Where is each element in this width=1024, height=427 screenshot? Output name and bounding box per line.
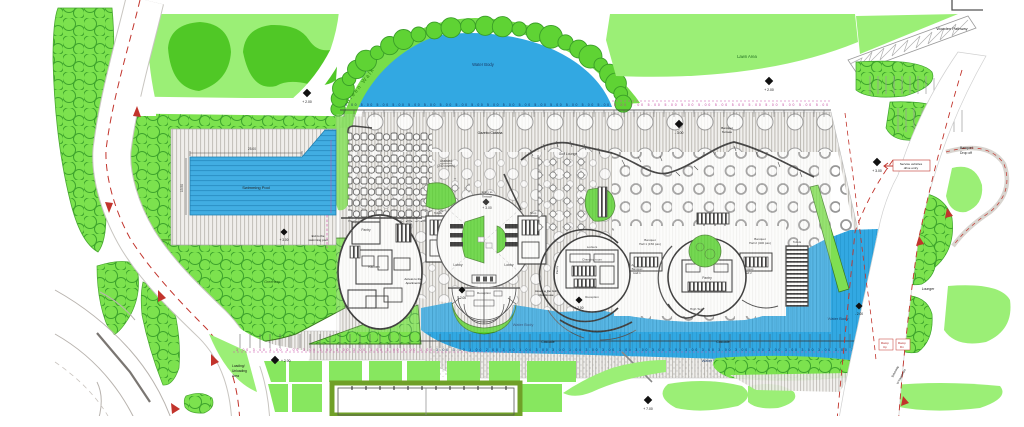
svg-text:Wooden Pathway: Wooden Pathway <box>936 26 967 31</box>
svg-text:drive entry: drive entry <box>904 166 919 170</box>
svg-text:Cascade: Cascade <box>541 340 554 344</box>
svg-text:+ 2.00: + 2.00 <box>764 88 774 92</box>
svg-text:Dn: Dn <box>900 345 904 349</box>
svg-text:- 2.00: - 2.00 <box>855 312 863 316</box>
svg-text:+ 2.00: + 2.00 <box>302 100 312 104</box>
svg-text:Area: Area <box>232 374 239 378</box>
svg-text:Banquet: Banquet <box>960 146 973 150</box>
svg-text:Lounger: Lounger <box>922 287 935 291</box>
svg-text:Swimming Pool: Swimming Pool <box>242 185 270 190</box>
svg-text:Cascade: Cascade <box>716 340 729 344</box>
svg-text:3.00 3.00 3.00 2.00 3.00 3.00: 3.00 3.00 3.00 2.00 3.00 3.00 3.00 3.00 … <box>436 348 880 352</box>
svg-text:- 2.00: - 2.00 <box>458 296 466 300</box>
svg-text:+ 2.00: + 2.00 <box>281 359 291 363</box>
svg-text:- 3.00: - 3.00 <box>675 131 684 135</box>
svg-text:Club House: Club House <box>538 293 553 297</box>
svg-text:13.50: 13.50 <box>180 184 184 192</box>
svg-text:Drop off: Drop off <box>960 151 972 155</box>
svg-text:Lawn Area: Lawn Area <box>737 54 757 59</box>
svg-text:Up: Up <box>883 345 887 349</box>
svg-text:+ 2.00: + 2.00 <box>575 306 584 310</box>
svg-text:Water Body: Water Body <box>472 62 495 67</box>
svg-text:Apartments: Apartments <box>406 281 421 285</box>
svg-text:Unloading: Unloading <box>232 369 247 373</box>
svg-text:+ 3.00: + 3.00 <box>872 169 882 173</box>
svg-text:Gazebo Cabana: Gazebo Cabana <box>478 131 503 135</box>
svg-text:+ 7.00: + 7.00 <box>643 407 653 411</box>
svg-text:Loading/: Loading/ <box>232 364 245 368</box>
svg-text:25.00: 25.00 <box>248 147 256 151</box>
svg-text:Terrace: Terrace <box>722 130 733 134</box>
svg-text:swimming pool: swimming pool <box>308 238 327 242</box>
svg-text:+ 3.00: + 3.00 <box>280 238 289 242</box>
svg-text:Greenery: Greenery <box>264 280 280 284</box>
